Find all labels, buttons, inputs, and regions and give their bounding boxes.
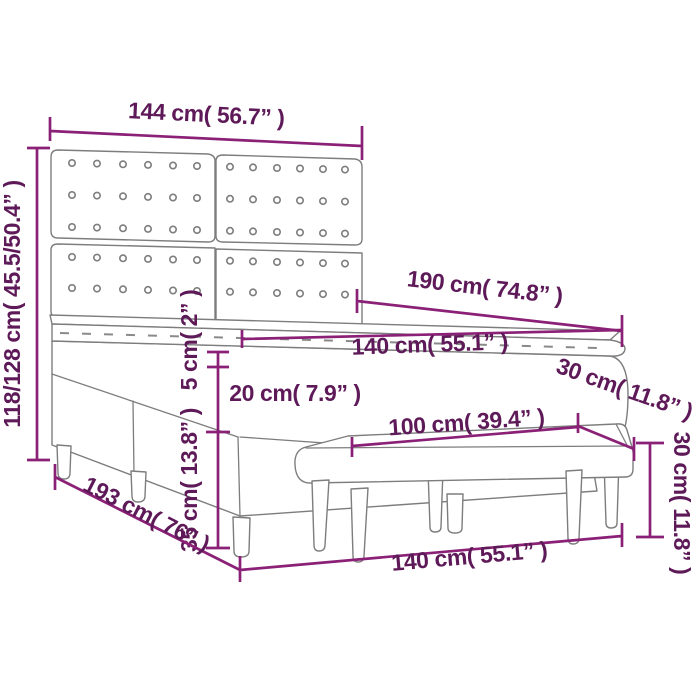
tufting-button: [320, 198, 326, 204]
tufting-button: [194, 257, 200, 263]
bench-height-label: 30 cm( 11.8” ): [669, 432, 695, 575]
tufting-button: [274, 259, 280, 265]
tufting-button: [69, 285, 75, 291]
tufting-button: [145, 226, 151, 232]
tufting-button: [250, 258, 256, 264]
tufting-button: [297, 165, 303, 171]
tufting-button: [227, 196, 233, 202]
tufting-button: [320, 291, 326, 297]
tufting-button: [145, 256, 151, 262]
tufting-button: [170, 194, 176, 200]
tufting-button: [250, 228, 256, 234]
diagram-canvas: 144 cm( 56.7” ) 118/128 cm( 45.5/50.4” )…: [0, 0, 700, 700]
tufting-button: [227, 228, 233, 234]
tufting-button: [69, 224, 75, 230]
mattress-width-label: 140 cm( 55.1” ): [351, 328, 508, 359]
tufting-button: [227, 289, 233, 295]
tufting-button: [94, 192, 100, 198]
tufting-button: [120, 255, 126, 261]
tufting-button: [274, 197, 280, 203]
bed-leg: [57, 445, 71, 479]
dim-line: [636, 443, 664, 537]
tufting-button: [250, 196, 256, 202]
tufting-button: [69, 192, 75, 198]
tufting-button: [170, 256, 176, 262]
tufting-button: [194, 195, 200, 201]
bed-length-label: 190 cm( 74.8” ): [406, 265, 564, 309]
tufting-button: [274, 165, 280, 171]
tufting-button: [194, 227, 200, 233]
tufting-button: [120, 286, 126, 292]
bed-leg: [447, 494, 463, 533]
tufting-button: [94, 254, 100, 260]
tufting-button: [342, 230, 348, 236]
tufting-button: [120, 225, 126, 231]
headboard-width-label: 144 cm( 56.7” ): [128, 97, 285, 131]
tufting-button: [274, 290, 280, 296]
tufting-button: [297, 259, 303, 265]
tufting-button: [194, 163, 200, 169]
tufting-button: [227, 164, 233, 170]
dim-bench-height: 30 cm( 11.8” ): [636, 432, 695, 575]
tufting-button: [69, 254, 75, 260]
headboard-panel-bottom-right: [216, 249, 362, 330]
tufting-button: [342, 260, 348, 266]
tufting-button: [120, 161, 126, 167]
tufting-button: [227, 258, 233, 264]
tufting-button: [69, 160, 75, 166]
tufting-button: [274, 229, 280, 235]
tufting-button: [250, 289, 256, 295]
tufting-button: [94, 224, 100, 230]
tufting-button: [250, 164, 256, 170]
tufting-button: [120, 193, 126, 199]
tufting-button: [170, 226, 176, 232]
tufting-button: [297, 290, 303, 296]
tufting-button: [145, 287, 151, 293]
tufting-button: [145, 194, 151, 200]
bed-width-bottom-label: 140 cm( 55.1” ): [390, 536, 548, 576]
dim-line: [27, 148, 50, 460]
tufting-button: [297, 229, 303, 235]
tufting-button: [170, 162, 176, 168]
dim-total-height: 118/128 cm( 45.5/50.4” ): [0, 148, 50, 460]
bed-leg: [233, 517, 250, 557]
tufting-button: [320, 230, 326, 236]
dim-bed-width-bottom: 140 cm( 55.1” ): [240, 523, 622, 582]
mattress-height-label: 20 cm( 7.9” ): [229, 380, 361, 406]
tufting-button: [342, 291, 348, 297]
bench-leg: [351, 488, 368, 562]
headboard-panel-top-right: [216, 155, 362, 245]
tufting-button: [94, 160, 100, 166]
bed-dimension-drawing: 144 cm( 56.7” ) 118/128 cm( 45.5/50.4” )…: [0, 0, 700, 700]
headboard: [51, 150, 362, 330]
topper-height-label: 5 cm( 2” ): [176, 290, 202, 391]
tufting-button: [320, 260, 326, 266]
tufting-button: [145, 162, 151, 168]
tufting-button: [94, 285, 100, 291]
bench-leg: [312, 480, 329, 551]
total-height-label: 118/128 cm( 45.5/50.4” ): [0, 180, 25, 427]
tufting-button: [297, 197, 303, 203]
tufting-button: [342, 166, 348, 172]
tufting-button: [320, 166, 326, 172]
bench-leg: [566, 470, 582, 544]
tufting-button: [342, 198, 348, 204]
